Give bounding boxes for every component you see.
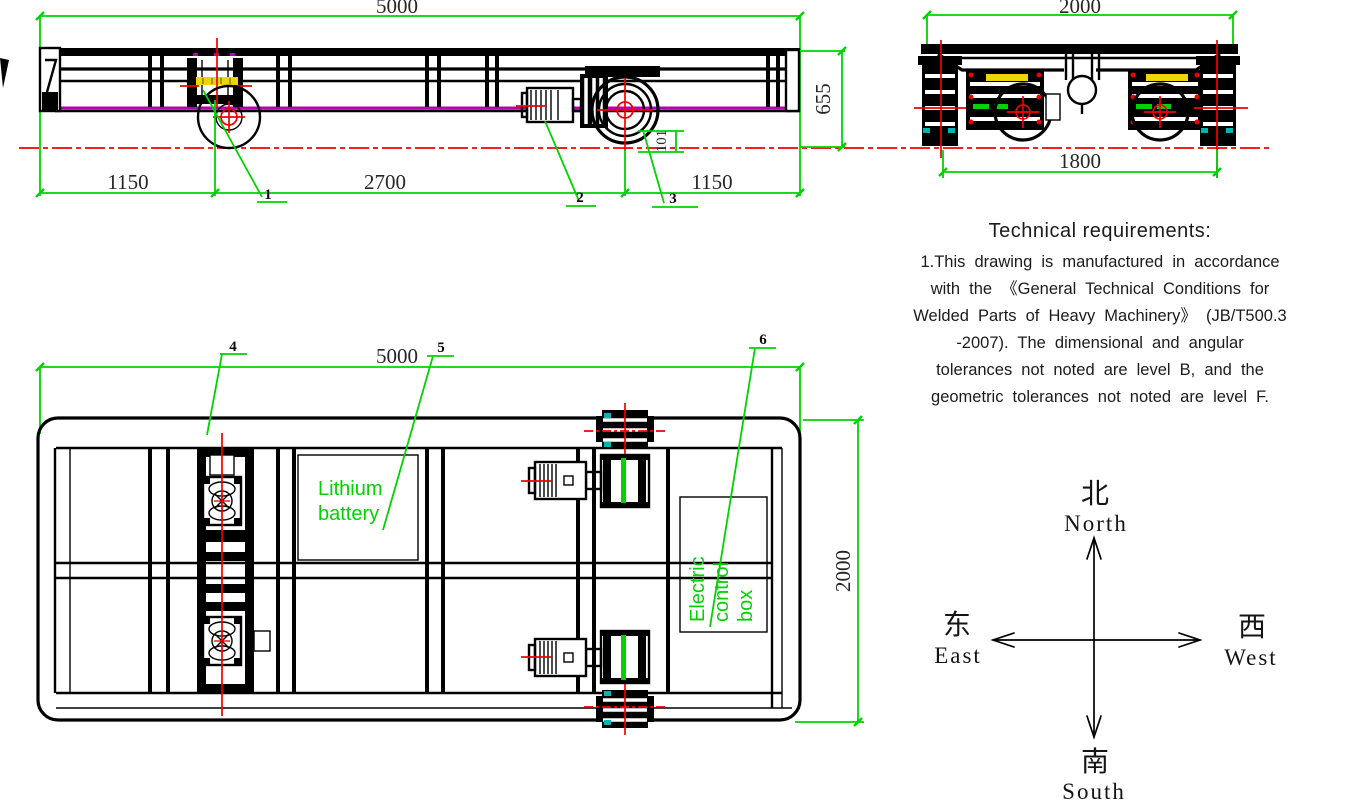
tech-requirements-line: 1.This drawing is manufactured in accord…	[862, 249, 1338, 276]
compass-east-cn: 东	[943, 608, 971, 641]
control-box-label-line3: box	[735, 590, 757, 622]
svg-text:2: 2	[576, 190, 584, 206]
tech-requirements-line: -2007). The dimensional and angular	[862, 330, 1338, 357]
deck-bar	[921, 44, 1238, 54]
battery-label-line1: Lithium	[318, 478, 382, 500]
rear-end-plate	[786, 50, 799, 111]
dim-text-1150-right: 1150	[691, 170, 732, 194]
battery-label-line2: battery	[318, 503, 379, 525]
svg-text:6: 6	[759, 332, 767, 348]
edge-fragment	[0, 58, 9, 88]
dim-text-5000-plan: 5000	[376, 344, 418, 368]
dim-text-1150-left: 1150	[107, 170, 148, 194]
drive-motor-side	[522, 88, 581, 122]
tech-requirements-title: Technical requirements:	[862, 220, 1338, 243]
dimension-height: 655	[800, 47, 846, 151]
cad-drawing-sheet: 5000	[0, 0, 1345, 801]
svg-text:4: 4	[229, 339, 237, 355]
compass-south-cn: 南	[1081, 745, 1109, 778]
compass-north-cn: 北	[1081, 477, 1109, 510]
tech-requirements-line: Welded Parts of Heavy Machinery》 (JB/T50…	[862, 303, 1338, 330]
outer-wheel-right	[1194, 40, 1248, 178]
dim-text-655: 655	[811, 83, 835, 115]
drive-unit-right-end	[1128, 70, 1202, 140]
dim-text-2700: 2700	[364, 170, 406, 194]
compass-east-en: East	[934, 643, 982, 668]
dimension-track-gauge: 1800	[939, 149, 1221, 178]
cart-frame-side	[0, 48, 800, 111]
dim-text-2000-end: 2000	[1059, 0, 1101, 18]
callout-4: 4	[207, 339, 247, 435]
motor-nameplate	[986, 74, 1028, 81]
tech-requirements-line: tolerances not noted are level B, and th…	[862, 357, 1338, 384]
dim-text-101: 101	[654, 130, 670, 153]
compass-south-en: South	[1062, 779, 1126, 801]
dim-text-2000-plan: 2000	[831, 550, 855, 592]
dimension-overall-width: 2000	[923, 0, 1237, 45]
dimension-plan-length: 5000	[36, 344, 804, 434]
motor-nameplate	[1146, 74, 1188, 81]
compass-west-cn: 西	[1238, 610, 1266, 643]
gearbox-green-bar	[621, 458, 626, 503]
tech-requirements-line: with the 《General Technical Conditions f…	[862, 276, 1338, 303]
dim-text-5000-side: 5000	[376, 0, 418, 18]
drive-motor-plan-bottom	[521, 639, 586, 676]
side-elevation-view: 5000	[0, 0, 846, 207]
caster-assembly-plan	[197, 433, 270, 716]
dim-text-1800: 1800	[1059, 149, 1101, 173]
electric-control-box: Electric control box	[680, 497, 767, 632]
arrowheads	[993, 538, 1200, 737]
callout-3: 3	[643, 130, 698, 207]
compass-north-en: North	[1064, 511, 1128, 536]
dimension-plan-width: 2000	[795, 416, 864, 726]
svg-text:1: 1	[264, 187, 272, 203]
svg-text:5: 5	[437, 340, 445, 356]
technical-requirements: Technical requirements: 1.This drawing i…	[862, 220, 1338, 411]
center-coupler	[1066, 54, 1099, 114]
outer-wheel-left	[914, 40, 968, 158]
control-box-label-line1: Electric	[687, 556, 709, 622]
control-box-label-line2: control	[711, 562, 733, 622]
drive-motor-plan-top	[521, 462, 586, 499]
svg-text:3: 3	[669, 191, 677, 207]
end-view: 2000	[914, 0, 1248, 178]
gearbox-green-bar	[621, 635, 626, 680]
plan-view: 5000 Lithium battery	[36, 332, 864, 735]
plan-frame	[38, 418, 800, 720]
compass: 北 North 东 East 西 West 南 South	[934, 477, 1278, 801]
compass-west-en: West	[1224, 645, 1277, 670]
drive-unit-left-end	[966, 70, 1060, 140]
dimension-wheel-to-rail: 101	[638, 130, 684, 153]
tech-requirements-line: geometric tolerances not noted are level…	[862, 384, 1338, 411]
